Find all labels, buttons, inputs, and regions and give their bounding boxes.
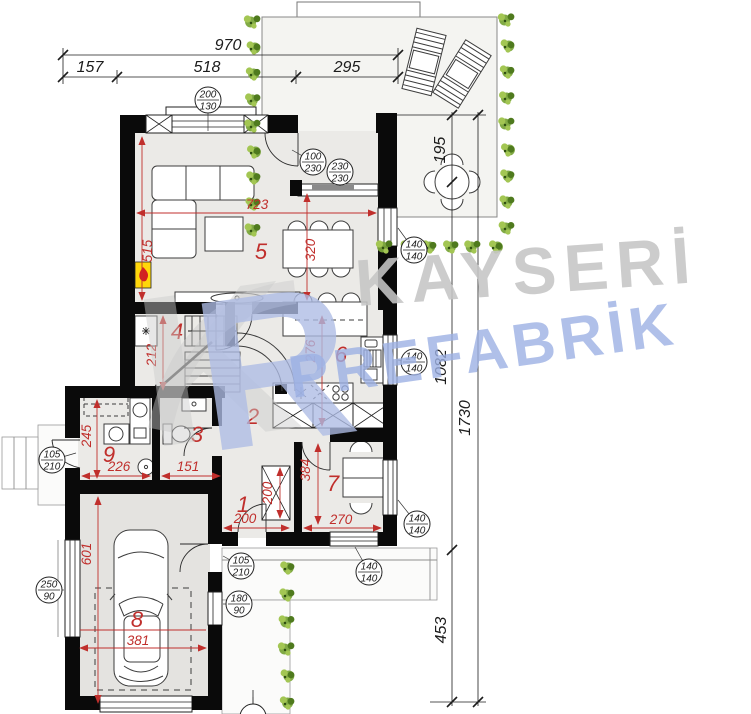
dim-label: 453 — [433, 617, 450, 644]
dim-bubble-bottom: 140 — [361, 574, 378, 585]
room-label: 8 — [131, 607, 144, 632]
plant — [245, 93, 260, 106]
plant — [247, 41, 261, 54]
washing-machine — [104, 424, 129, 444]
floor-plan-page: 2001301002302302301401401401401401401401… — [0, 0, 751, 714]
roof-outline — [297, 2, 420, 17]
dim-label: 195 — [432, 137, 449, 164]
room-label: 1 — [237, 492, 249, 517]
dim-label: 381 — [127, 633, 150, 648]
dim-label: 970 — [215, 37, 242, 54]
plant — [498, 13, 515, 26]
dim-bubble: 140140 — [398, 500, 430, 537]
plant — [499, 221, 515, 234]
dim-bubble-top: 105 — [233, 556, 250, 567]
dim-bubble-bottom: 90 — [43, 592, 55, 603]
dim-bubble-top: 105 — [44, 450, 61, 461]
dim-label: 518 — [194, 59, 221, 76]
dim-bubble-top: 250 — [40, 580, 58, 591]
plant — [244, 15, 261, 28]
plant — [500, 65, 515, 78]
plant — [501, 39, 515, 52]
dim-label: 157 — [77, 59, 105, 76]
room-label: 9 — [103, 442, 115, 467]
plant — [501, 143, 515, 156]
dim-bubble-bottom: 140 — [409, 526, 426, 537]
south-porch-walkway — [222, 548, 437, 714]
dim-bubble-top: 140 — [409, 514, 426, 525]
plant — [499, 91, 514, 104]
plant — [500, 169, 514, 182]
floor-plan-drawing: 2001301002302302301401401401401401401401… — [0, 0, 751, 714]
dim-label: 601 — [79, 543, 94, 566]
dim-label: 723 — [246, 197, 269, 212]
dim-bubble-bottom: 210 — [43, 462, 61, 473]
plant — [498, 117, 514, 130]
dim-label: 270 — [329, 512, 353, 527]
watermark: K R KAYSERİ PREFABRİK — [123, 222, 701, 497]
dim-label: 295 — [333, 59, 361, 76]
plant — [499, 195, 514, 208]
dim-bubble-bottom: 230 — [304, 164, 322, 175]
dim-label: 1730 — [457, 400, 474, 436]
dim-bubble-bottom: 230 — [331, 174, 349, 185]
plant — [246, 67, 261, 80]
dim-bubble-top: 100 — [305, 152, 322, 163]
dim-bubble: 25090 — [36, 577, 64, 603]
dim-bubble-bottom: 210 — [232, 568, 250, 579]
dim-bubble-top: 230 — [331, 162, 349, 173]
dim-bubble: 230230 — [327, 159, 353, 186]
dim-bubble-bottom: 130 — [200, 102, 217, 113]
dim-bubble-top: 180 — [231, 594, 248, 605]
dim-bubble-bottom: 90 — [233, 606, 245, 617]
dim-label: 245 — [79, 424, 94, 448]
dim-bubble-top: 200 — [199, 90, 217, 101]
dim-bubble-top: 140 — [361, 562, 378, 573]
